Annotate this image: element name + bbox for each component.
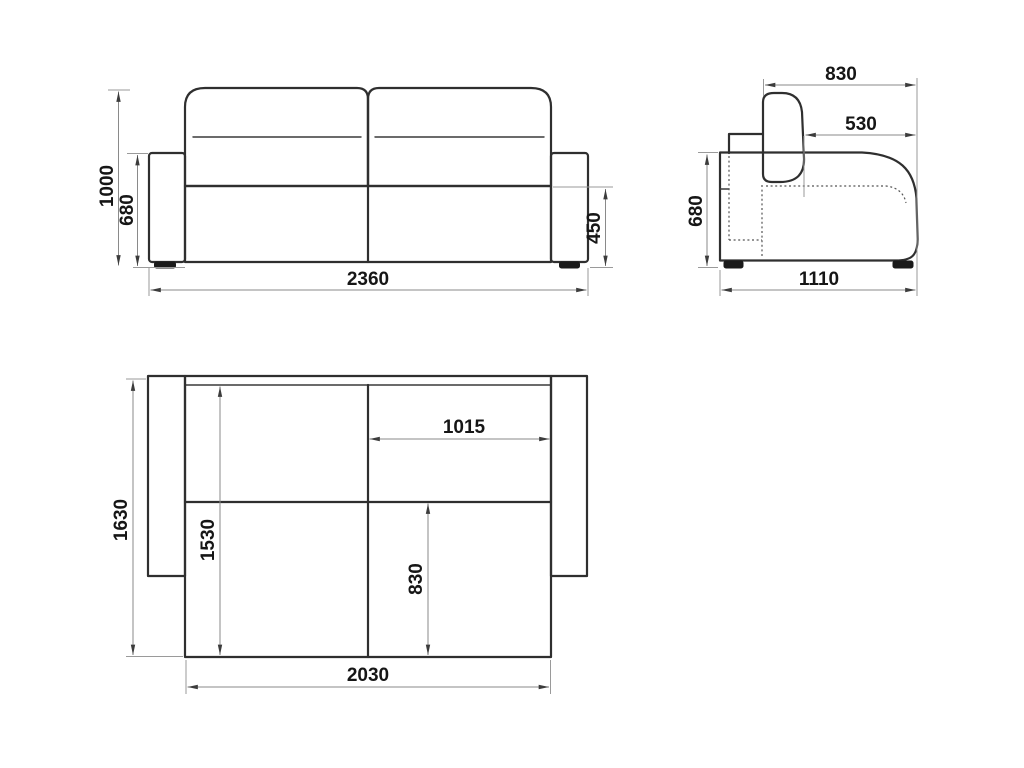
- dim-front-seat-height: 450: [553, 187, 613, 268]
- dim-label-front-seat-height: 450: [584, 212, 605, 244]
- side-backrest: [729, 134, 763, 153]
- dim-side-armrest-height: 680: [686, 153, 718, 268]
- dim-label-top-unfolded-depth: 1630: [111, 499, 132, 541]
- dim-label-top-bed-length: 1530: [198, 519, 219, 561]
- side-foot-right: [893, 261, 913, 268]
- front-armrest-right: [551, 153, 588, 262]
- dim-front-armrest-height: 680: [117, 154, 148, 267]
- dim-top-bed-width: 2030: [186, 660, 551, 694]
- dim-side-overall-depth: 1110: [720, 269, 916, 296]
- dim-label-side-backrest-depth: 830: [825, 64, 857, 85]
- dim-side-seat-depth: 530: [804, 114, 916, 197]
- side-foot-left: [724, 261, 743, 268]
- dim-top-half-width: 1015: [370, 417, 550, 439]
- dim-label-side-armrest-height: 680: [686, 195, 707, 227]
- front-view: 1000 680 450 2360: [97, 88, 613, 296]
- dim-top-bed-length: 1530: [198, 387, 220, 656]
- dim-label-front-overall-width: 2360: [347, 269, 389, 290]
- dim-front-overall-height: 1000: [97, 90, 185, 268]
- front-foot-right: [560, 262, 580, 268]
- top-armrest-left: [148, 376, 185, 576]
- dim-label-top-bed-section-depth: 830: [406, 563, 427, 595]
- dim-label-front-overall-height: 1000: [97, 165, 118, 207]
- sofa-dimension-drawing: 1000 680 450 2360: [0, 0, 1024, 768]
- dim-top-bed-section-depth: 830: [406, 504, 428, 656]
- dim-label-top-half-width: 1015: [443, 417, 486, 438]
- top-armrest-right: [551, 376, 587, 576]
- side-view: 830 530 680 1110: [686, 64, 918, 296]
- front-armrest-left: [149, 153, 185, 262]
- dim-label-front-armrest-height: 680: [117, 194, 138, 226]
- top-view: 1630 1530 1015 830 2030: [111, 376, 587, 694]
- technical-drawing-svg: 1000 680 450 2360: [0, 0, 1024, 768]
- side-seat-dotted-line: [766, 186, 906, 203]
- dim-label-side-seat-depth: 530: [845, 114, 877, 135]
- side-body: [720, 153, 918, 261]
- side-back-cushion: [763, 93, 804, 182]
- dim-label-top-bed-width: 2030: [347, 665, 389, 686]
- dim-front-overall-width: 2360: [149, 268, 588, 296]
- dim-label-side-overall-depth: 1110: [799, 269, 839, 290]
